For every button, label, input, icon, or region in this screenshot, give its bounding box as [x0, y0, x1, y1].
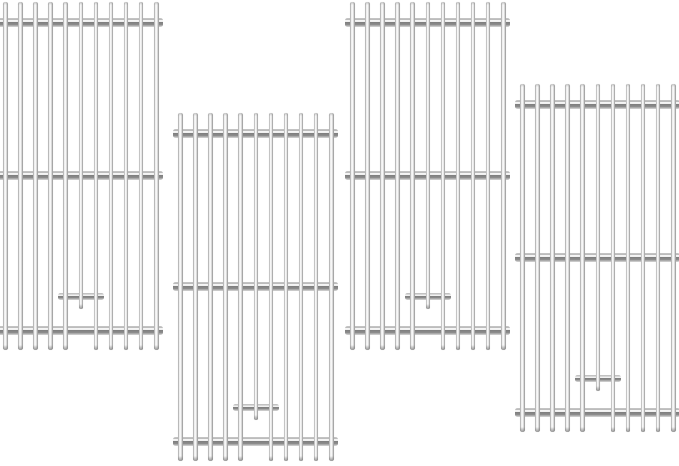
grill-grate-1: [0, 2, 163, 354]
rod-tip-top: [501, 2, 506, 5]
rod-tip-bottom: [3, 345, 8, 350]
grate-rod-10: [656, 84, 661, 432]
rod-tip-top: [486, 2, 491, 5]
rod-tip-bottom: [501, 345, 506, 350]
grate-rod-8: [109, 2, 114, 350]
rod-tip-top: [33, 2, 38, 5]
grate-rod-4: [223, 113, 228, 461]
rod-tip-top: [193, 113, 198, 116]
rod-tip-bottom: [350, 345, 355, 350]
grill-grate-3: [345, 2, 510, 354]
rod-tip-top: [269, 113, 274, 116]
rod-tip-top: [641, 84, 646, 87]
rod-tip-top: [426, 2, 431, 5]
rod-tip-bottom: [550, 427, 555, 432]
rod-tip-bottom: [208, 456, 213, 461]
rod-tip-bottom: [671, 427, 676, 432]
rod-tip-top: [284, 113, 289, 116]
grate-rod-9: [124, 2, 129, 350]
rod-tip-top: [395, 2, 400, 5]
rod-tip-bottom: [535, 427, 540, 432]
rod-tip-bottom: [596, 386, 601, 391]
rod-tip-top: [254, 113, 259, 116]
rod-tip-bottom: [410, 345, 415, 350]
rod-tip-bottom: [154, 345, 159, 350]
rod-tip-top: [208, 113, 213, 116]
grate-rod-4: [395, 2, 400, 350]
grate-rod-7: [441, 2, 446, 350]
grate-rod-7: [269, 113, 274, 461]
rod-tip-top: [350, 2, 355, 5]
rod-tip-top: [520, 84, 525, 87]
grate-rod-5: [63, 2, 68, 350]
grate-rod-7: [611, 84, 616, 432]
rod-tip-bottom: [395, 345, 400, 350]
grate-rod-2: [365, 2, 370, 350]
rod-tip-top: [238, 113, 243, 116]
rod-tip-bottom: [626, 427, 631, 432]
grate-rod-11: [671, 84, 676, 432]
rod-tip-top: [456, 2, 461, 5]
rod-tip-bottom: [441, 345, 446, 350]
rod-tip-top: [535, 84, 540, 87]
rod-tip-top: [18, 2, 23, 5]
grill-grate-4: [515, 84, 679, 436]
rod-tip-bottom: [284, 456, 289, 461]
rod-tip-top: [109, 2, 114, 5]
rod-tip-bottom: [269, 456, 274, 461]
rod-tip-bottom: [471, 345, 476, 350]
rod-tip-bottom: [329, 456, 334, 461]
rod-tip-top: [596, 84, 601, 87]
rod-tip-top: [48, 2, 53, 5]
grate-rod-7: [94, 2, 99, 350]
grate-rod-4: [565, 84, 570, 432]
rod-tip-top: [365, 2, 370, 5]
product-photo: [0, 0, 679, 466]
grate-rod-2: [18, 2, 23, 350]
rod-tip-bottom: [486, 345, 491, 350]
grate-rod-11: [329, 113, 334, 461]
rod-tip-bottom: [94, 345, 99, 350]
rod-tip-top: [671, 84, 676, 87]
rod-tip-top: [63, 2, 68, 5]
grate-rod-8: [456, 2, 461, 350]
rod-tip-top: [154, 2, 159, 5]
rod-tip-bottom: [193, 456, 198, 461]
rod-tip-bottom: [223, 456, 228, 461]
rod-tip-top: [139, 2, 144, 5]
rod-tip-top: [380, 2, 385, 5]
grate-rod-9: [471, 2, 476, 350]
rod-tip-bottom: [63, 345, 68, 350]
rod-tip-top: [471, 2, 476, 5]
rod-tip-bottom: [299, 456, 304, 461]
rod-tip-top: [550, 84, 555, 87]
rod-tip-bottom: [109, 345, 114, 350]
grate-rod-10: [486, 2, 491, 350]
grate-rod-3: [208, 113, 213, 461]
rod-tip-bottom: [178, 456, 183, 461]
rod-tip-bottom: [238, 456, 243, 461]
grate-rod-8: [284, 113, 289, 461]
grate-rod-4: [48, 2, 53, 350]
grate-rod-2: [193, 113, 198, 461]
rod-tip-bottom: [33, 345, 38, 350]
rod-tip-bottom: [254, 415, 259, 420]
grate-rod-11: [154, 2, 159, 350]
rod-tip-bottom: [456, 345, 461, 350]
rod-tip-top: [299, 113, 304, 116]
grate-rod-6-short: [426, 2, 431, 309]
rod-tip-top: [626, 84, 631, 87]
rod-tip-bottom: [124, 345, 129, 350]
rod-tip-top: [178, 113, 183, 116]
grate-rod-8: [626, 84, 631, 432]
grill-grate-2: [173, 113, 338, 465]
rod-tip-top: [94, 2, 99, 5]
rod-tip-bottom: [580, 427, 585, 432]
grate-rod-5: [238, 113, 243, 461]
rod-tip-bottom: [365, 345, 370, 350]
rod-tip-bottom: [611, 427, 616, 432]
grate-rod-9: [641, 84, 646, 432]
grate-rod-3: [380, 2, 385, 350]
grate-rod-10: [139, 2, 144, 350]
grate-rod-10: [314, 113, 319, 461]
rod-tip-bottom: [139, 345, 144, 350]
grate-rod-6-short: [254, 113, 259, 420]
grate-rod-9: [299, 113, 304, 461]
rod-tip-bottom: [656, 427, 661, 432]
rod-tip-top: [223, 113, 228, 116]
rod-tip-bottom: [641, 427, 646, 432]
rod-tip-top: [611, 84, 616, 87]
rod-tip-bottom: [426, 304, 431, 309]
grate-rod-5: [410, 2, 415, 350]
rod-tip-bottom: [314, 456, 319, 461]
grate-rod-2: [535, 84, 540, 432]
rod-tip-top: [441, 2, 446, 5]
rod-tip-top: [79, 2, 84, 5]
rod-tip-bottom: [380, 345, 385, 350]
rod-tip-top: [3, 2, 8, 5]
rod-tip-top: [124, 2, 129, 5]
grate-rod-1: [178, 113, 183, 461]
rod-tip-top: [656, 84, 661, 87]
rod-tip-bottom: [565, 427, 570, 432]
rod-tip-top: [329, 113, 334, 116]
rod-tip-top: [580, 84, 585, 87]
grate-rod-3: [550, 84, 555, 432]
grate-rod-1: [520, 84, 525, 432]
rod-tip-bottom: [48, 345, 53, 350]
grate-rod-6-short: [596, 84, 601, 391]
rod-tip-top: [410, 2, 415, 5]
rod-tip-top: [565, 84, 570, 87]
grate-rod-1: [3, 2, 8, 350]
grate-rod-1: [350, 2, 355, 350]
rod-tip-bottom: [18, 345, 23, 350]
grate-rod-6-short: [79, 2, 84, 309]
rod-tip-top: [314, 113, 319, 116]
rod-tip-bottom: [79, 304, 84, 309]
grate-rod-11: [501, 2, 506, 350]
grate-rod-3: [33, 2, 38, 350]
grate-rod-5: [580, 84, 585, 432]
rod-tip-bottom: [520, 427, 525, 432]
